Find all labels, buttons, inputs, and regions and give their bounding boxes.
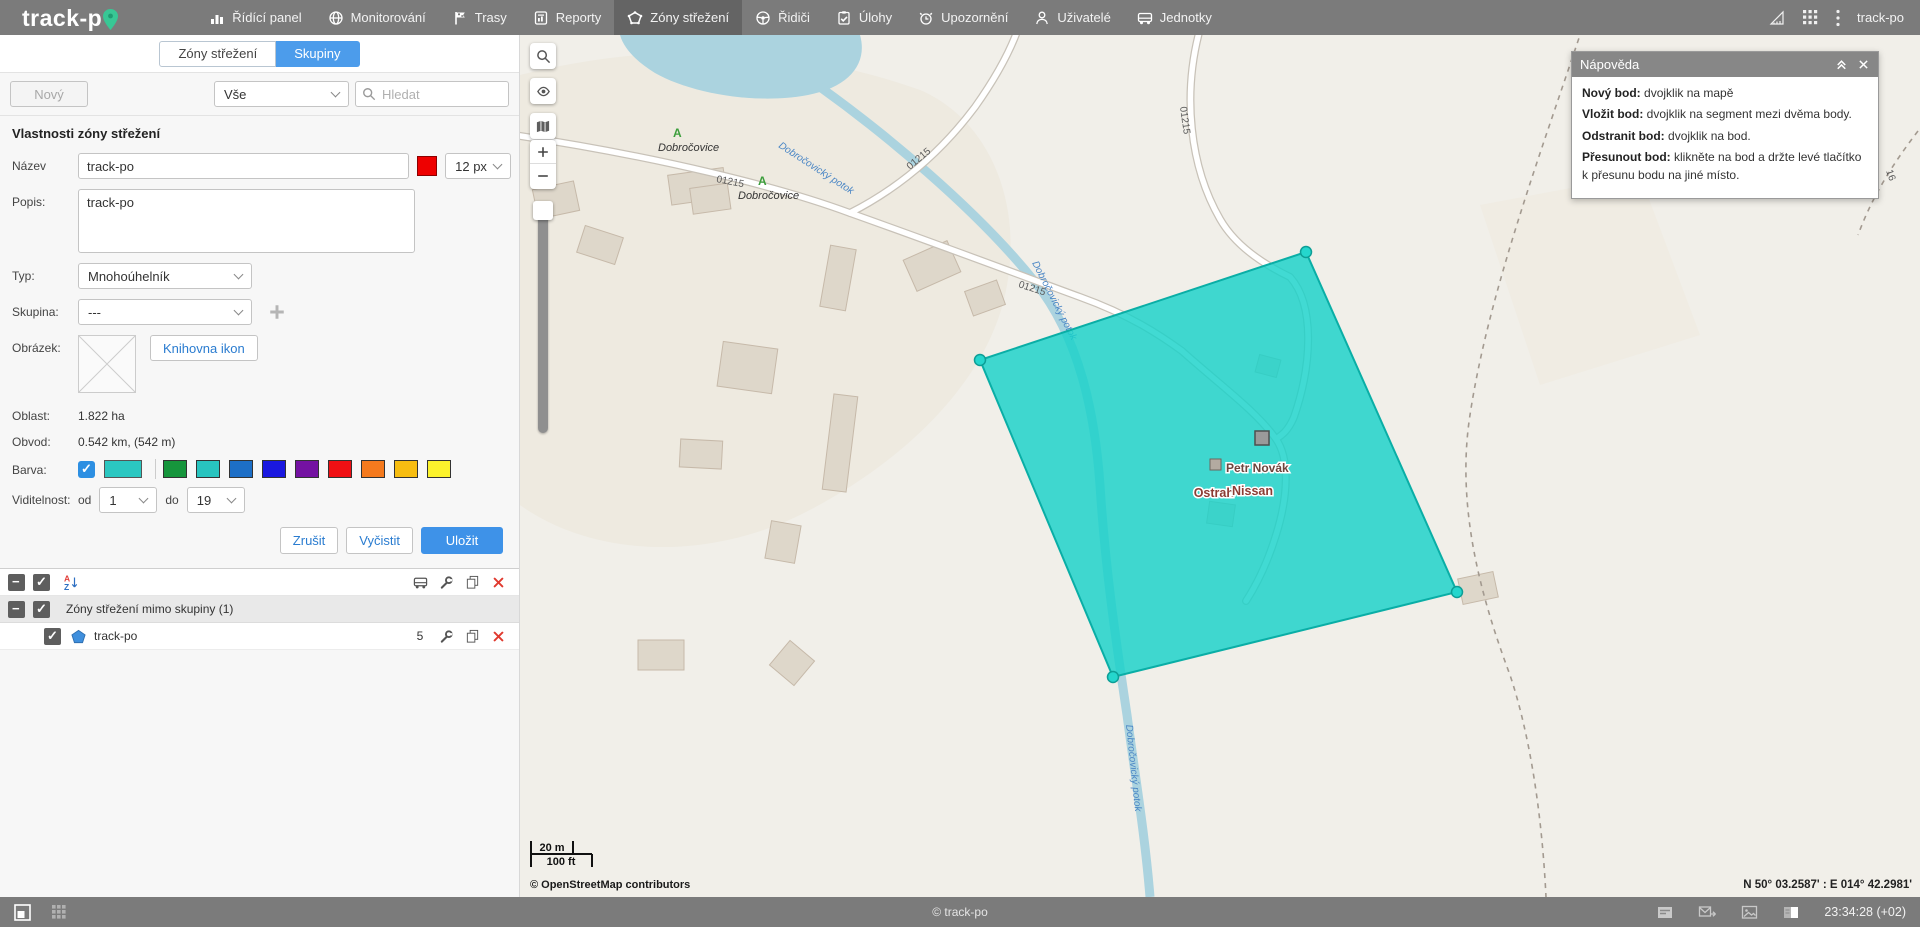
chevron-down-icon <box>234 269 244 279</box>
truck-icon <box>1137 10 1153 26</box>
dashboard-icon <box>209 10 225 26</box>
ruler-icon[interactable] <box>1768 10 1786 26</box>
line-width-value: 12 px <box>455 159 487 174</box>
report-icon <box>533 10 549 26</box>
tasks-icon <box>836 10 852 26</box>
zoom-buttons <box>530 140 556 189</box>
collapse-icon[interactable] <box>1834 57 1849 72</box>
layers-icon <box>535 119 551 134</box>
zoom-out-button[interactable] <box>530 164 556 188</box>
color-swatch[interactable] <box>394 460 418 478</box>
topbar-right-tools: track-po <box>1768 9 1920 27</box>
perimeter-value: 0.542 km, (542 m) <box>78 429 175 449</box>
description-label: Popis: <box>12 189 78 209</box>
icon-library-button[interactable]: Knihovna ikon <box>150 335 258 361</box>
form-buttons: Zrušit Vyčistit Uložit <box>12 527 511 554</box>
map-container[interactable]: Dobročovice Dobročovice 01215 01215 0121… <box>520 35 1920 897</box>
zoom-slider-track[interactable] <box>538 205 548 433</box>
sidebar-toggle-icon[interactable] <box>1782 905 1800 920</box>
nav-item-tasks[interactable]: Úlohy <box>823 0 905 35</box>
group-row-label: Zóny střežení mimo skupiny (1) <box>66 602 233 616</box>
polygon-vertex-handle[interactable] <box>1108 672 1119 683</box>
color-swatch[interactable] <box>427 460 451 478</box>
color-swatch[interactable] <box>262 460 286 478</box>
minus-icon <box>536 169 550 183</box>
filter-select[interactable]: Vše <box>214 81 349 107</box>
help-term: Odstranit bod: <box>1582 129 1665 143</box>
image-icon[interactable] <box>1741 905 1758 920</box>
item-actions: 5 <box>407 629 511 644</box>
filter-select-value: Vše <box>224 87 246 102</box>
nav-item-drivers[interactable]: Řidiči <box>742 0 823 35</box>
help-item: Odstranit bod: dvojklik na bod. <box>1582 128 1868 145</box>
zone-group-select[interactable]: --- <box>78 299 252 325</box>
map-visibility-button[interactable] <box>530 78 556 104</box>
zone-type-select[interactable]: Mnohoúhelník <box>78 263 252 289</box>
help-item: Vložit bod: dvojklik na segment mezi dvě… <box>1582 106 1868 123</box>
collapse-all-checkbox[interactable] <box>8 574 25 591</box>
sort-az-icon[interactable]: AZ <box>64 574 80 591</box>
steering-wheel-icon <box>755 10 771 26</box>
search-box <box>355 81 509 107</box>
zone-description-textarea[interactable]: track-po <box>78 189 415 253</box>
flag-icon <box>452 10 468 26</box>
nav-label: Jednotky <box>1160 10 1212 25</box>
area-label: Oblast: <box>12 403 78 423</box>
nav-label: Upozornění <box>941 10 1008 25</box>
visibility-label: Viditelnost: <box>12 487 78 507</box>
nav-label: Monitorování <box>351 10 426 25</box>
window-icon[interactable] <box>14 904 31 921</box>
group-collapse-checkbox[interactable] <box>8 601 25 618</box>
nav-label: Řidiči <box>778 10 810 25</box>
visibility-row: od 1 do 19 <box>78 487 245 513</box>
polygon-vertex-handle[interactable] <box>975 355 986 366</box>
zoom-slider-thumb[interactable] <box>533 201 553 220</box>
form-title: Vlastnosti zóny střežení <box>12 126 511 141</box>
bottombar-left <box>0 904 67 921</box>
help-item: Přesunout bod: klikněte na bod a držte l… <box>1582 149 1868 184</box>
close-icon[interactable] <box>1857 58 1870 71</box>
area-value: 1.822 ha <box>78 403 125 423</box>
list-item-row[interactable]: track-po 5 <box>0 623 519 650</box>
polygon-icon <box>627 10 643 26</box>
alarm-icon <box>918 10 934 26</box>
chevron-down-icon <box>139 493 149 503</box>
polygon-vertex-handle[interactable] <box>1452 587 1463 598</box>
map-scale-bar: 20 m 100 ft <box>530 836 620 875</box>
image-label: Obrázek: <box>12 335 78 355</box>
chevron-down-icon <box>234 305 244 315</box>
help-term: Nový bod: <box>1582 86 1641 100</box>
globe-icon <box>328 10 344 26</box>
color-swatch[interactable] <box>328 460 352 478</box>
nav-item-users[interactable]: Uživatelé <box>1021 0 1123 35</box>
svg-text:Z: Z <box>64 582 69 591</box>
color-swatch[interactable] <box>229 460 253 478</box>
zone-image-placeholder[interactable] <box>78 335 136 393</box>
color-swatch[interactable] <box>295 460 319 478</box>
properties-wrench-icon[interactable] <box>433 629 459 644</box>
map-stop-marker: A <box>673 126 682 140</box>
user-icon <box>1034 10 1050 26</box>
scale-metric-label: 20 m <box>539 842 564 854</box>
color-swatch[interactable] <box>163 460 187 478</box>
list-header-actions <box>407 575 511 590</box>
nav-label: Zóny střežení <box>650 10 729 25</box>
zone-group-value: --- <box>88 305 101 320</box>
sidebar-tabs: Zóny střežení Skupiny <box>0 35 519 73</box>
content-area: Zóny střežení Skupiny Nový Vše Vlastnost… <box>0 35 1920 897</box>
nav-item-reports[interactable]: Reporty <box>520 0 615 35</box>
zone-polygon-icon <box>71 629 86 644</box>
color-swatch[interactable] <box>361 460 385 478</box>
poi-label: Nissan <box>1232 484 1273 498</box>
group-label: Skupina: <box>12 299 78 319</box>
cursor-coordinates: N 50° 03.2587' : E 014° 42.2981' <box>1743 879 1912 891</box>
nav-label: Řídící panel <box>232 10 301 25</box>
properties-wrench-icon[interactable] <box>433 575 459 590</box>
type-label: Typ: <box>12 263 78 283</box>
delete-icon[interactable] <box>485 576 511 589</box>
nav-label: Reporty <box>556 10 602 25</box>
geofence-list: AZ <box>0 568 519 650</box>
scale-imperial-label: 100 ft <box>547 856 576 868</box>
item-checkbox[interactable] <box>44 628 61 645</box>
visibility-from-select[interactable]: 1 <box>99 487 157 513</box>
save-button[interactable]: Uložit <box>421 527 503 554</box>
nav-label: Trasy <box>475 10 507 25</box>
visibility-to-select[interactable]: 19 <box>187 487 245 513</box>
polygon-vertex-handle[interactable] <box>1301 247 1312 258</box>
chevron-down-icon <box>493 159 503 169</box>
list-group-row[interactable]: Zóny střežení mimo skupiny (1) <box>0 596 519 623</box>
map-attribution: © OpenStreetMap contributors <box>530 879 690 891</box>
bottombar-right: 23:34:28 (+02) <box>1656 905 1920 920</box>
map-layers-button[interactable] <box>530 113 556 139</box>
points-count: 5 <box>407 629 433 643</box>
tab-groups[interactable]: Skupiny <box>276 41 359 67</box>
list-header-row: AZ <box>0 569 519 596</box>
app-root: track-p Řídící panel Monitorování Trasy … <box>0 0 1920 927</box>
zoom-in-button[interactable] <box>530 140 556 164</box>
visibility-from-value: 1 <box>109 493 116 508</box>
name-label: Název <box>12 153 78 173</box>
map-search-button[interactable] <box>530 43 556 69</box>
polygon-center-handle[interactable] <box>1255 431 1269 445</box>
nav-item-units[interactable]: Jednotky <box>1124 0 1225 35</box>
nav-item-notifications[interactable]: Upozornění <box>905 0 1021 35</box>
color-picker-row <box>78 457 451 479</box>
grid-icon[interactable] <box>51 904 67 920</box>
copyright-text: © track-po <box>0 905 1920 919</box>
current-user[interactable]: track-po <box>1857 10 1904 25</box>
map-road-label-partial: 16 <box>1883 168 1897 183</box>
eye-icon <box>535 84 552 99</box>
chevron-down-icon <box>331 87 341 97</box>
apps-grid-icon[interactable] <box>1802 9 1819 26</box>
assign-units-icon[interactable] <box>407 575 433 590</box>
zone-type-value: Mnohoúhelník <box>88 269 170 284</box>
search-icon <box>536 49 551 64</box>
nav-label: Uživatelé <box>1057 10 1110 25</box>
add-group-icon[interactable] <box>268 303 286 321</box>
plus-icon <box>536 145 550 159</box>
delete-icon[interactable] <box>485 630 511 643</box>
color-checkbox[interactable] <box>78 461 95 478</box>
nav-item-routes[interactable]: Trasy <box>439 0 520 35</box>
geofence-properties-form: Vlastnosti zóny střežení Název 12 px Pop… <box>0 116 519 554</box>
nav-item-monitoring[interactable]: Monitorování <box>315 0 439 35</box>
bottom-status-bar: © track-po 23:34:28 (+02) <box>0 897 1920 927</box>
poi-label: Ostrah <box>1194 486 1234 500</box>
clock-text: 23:34:28 (+02) <box>1824 905 1906 919</box>
tab-geofences[interactable]: Zóny střežení <box>159 41 276 67</box>
color-swatch[interactable] <box>196 460 220 478</box>
empty-image-icon <box>79 336 135 392</box>
help-desc: dvojklik na segment mezi dvěma body. <box>1647 107 1852 121</box>
sidebar-controls: Nový Vše <box>0 73 519 116</box>
name-color-swatch[interactable] <box>417 156 437 176</box>
panel-icon[interactable] <box>1656 905 1674 920</box>
mail-forward-icon[interactable] <box>1698 905 1717 919</box>
line-width-select[interactable]: 12 px <box>445 153 511 179</box>
poi-building-square <box>1210 459 1221 470</box>
poi-label: Petr Novák <box>1226 461 1289 475</box>
nav-label: Úlohy <box>859 10 892 25</box>
visibility-from-label: od <box>78 493 91 507</box>
current-color-swatch[interactable] <box>104 460 142 478</box>
help-desc: dvojklik na bod. <box>1668 129 1751 143</box>
search-icon <box>362 87 376 101</box>
logo-text: track-p <box>22 3 102 33</box>
map-stream-label: Dobročovický potok <box>1123 724 1143 813</box>
select-all-checkbox[interactable] <box>33 574 50 591</box>
help-desc: dvojklik na mapě <box>1644 86 1733 100</box>
nav-item-geofences[interactable]: Zóny střežení <box>614 0 742 35</box>
perimeter-label: Obvod: <box>12 429 78 449</box>
cancel-button[interactable]: Zrušit <box>280 527 339 554</box>
help-term: Vložit bod: <box>1582 107 1643 121</box>
clear-button[interactable]: Vyčistit <box>346 527 413 554</box>
sidebar-empty-area <box>0 650 519 897</box>
help-popup-header[interactable]: Nápověda <box>1572 52 1878 77</box>
map-place-label: Dobročovice <box>658 142 719 154</box>
copy-icon[interactable] <box>459 629 485 644</box>
help-popup-body: Nový bod: dvojklik na mapě Vložit bod: d… <box>1572 77 1878 198</box>
new-button[interactable]: Nový <box>10 81 88 107</box>
divider <box>155 459 156 479</box>
group-select-checkbox[interactable] <box>33 601 50 618</box>
visibility-to-label: do <box>165 493 178 507</box>
help-popup: Nápověda Nový bod: dvojklik na mapě Vlož… <box>1571 51 1879 199</box>
help-term: Přesunout bod: <box>1582 150 1671 164</box>
app-logo[interactable]: track-p <box>0 3 136 33</box>
copy-icon[interactable] <box>459 575 485 590</box>
search-input[interactable] <box>355 81 509 107</box>
top-navigation-bar: track-p Řídící panel Monitorování Trasy … <box>0 0 1920 35</box>
location-pin-icon <box>103 9 118 30</box>
map-stop-marker: A <box>758 174 767 188</box>
kebab-menu-icon[interactable] <box>1835 9 1841 27</box>
help-item: Nový bod: dvojklik na mapě <box>1582 85 1868 102</box>
map-place-label: Dobročovice <box>738 190 799 202</box>
help-title: Nápověda <box>1580 57 1639 72</box>
chevron-down-icon <box>226 493 236 503</box>
zone-name-input[interactable] <box>78 153 409 179</box>
main-menu: Řídící panel Monitorování Trasy Reporty … <box>196 0 1768 35</box>
visibility-to-value: 19 <box>197 493 211 508</box>
geofence-sidebar: Zóny střežení Skupiny Nový Vše Vlastnost… <box>0 35 520 897</box>
nav-item-dashboard[interactable]: Řídící panel <box>196 0 314 35</box>
zone-item-name[interactable]: track-po <box>94 629 137 643</box>
color-label: Barva: <box>12 457 78 477</box>
